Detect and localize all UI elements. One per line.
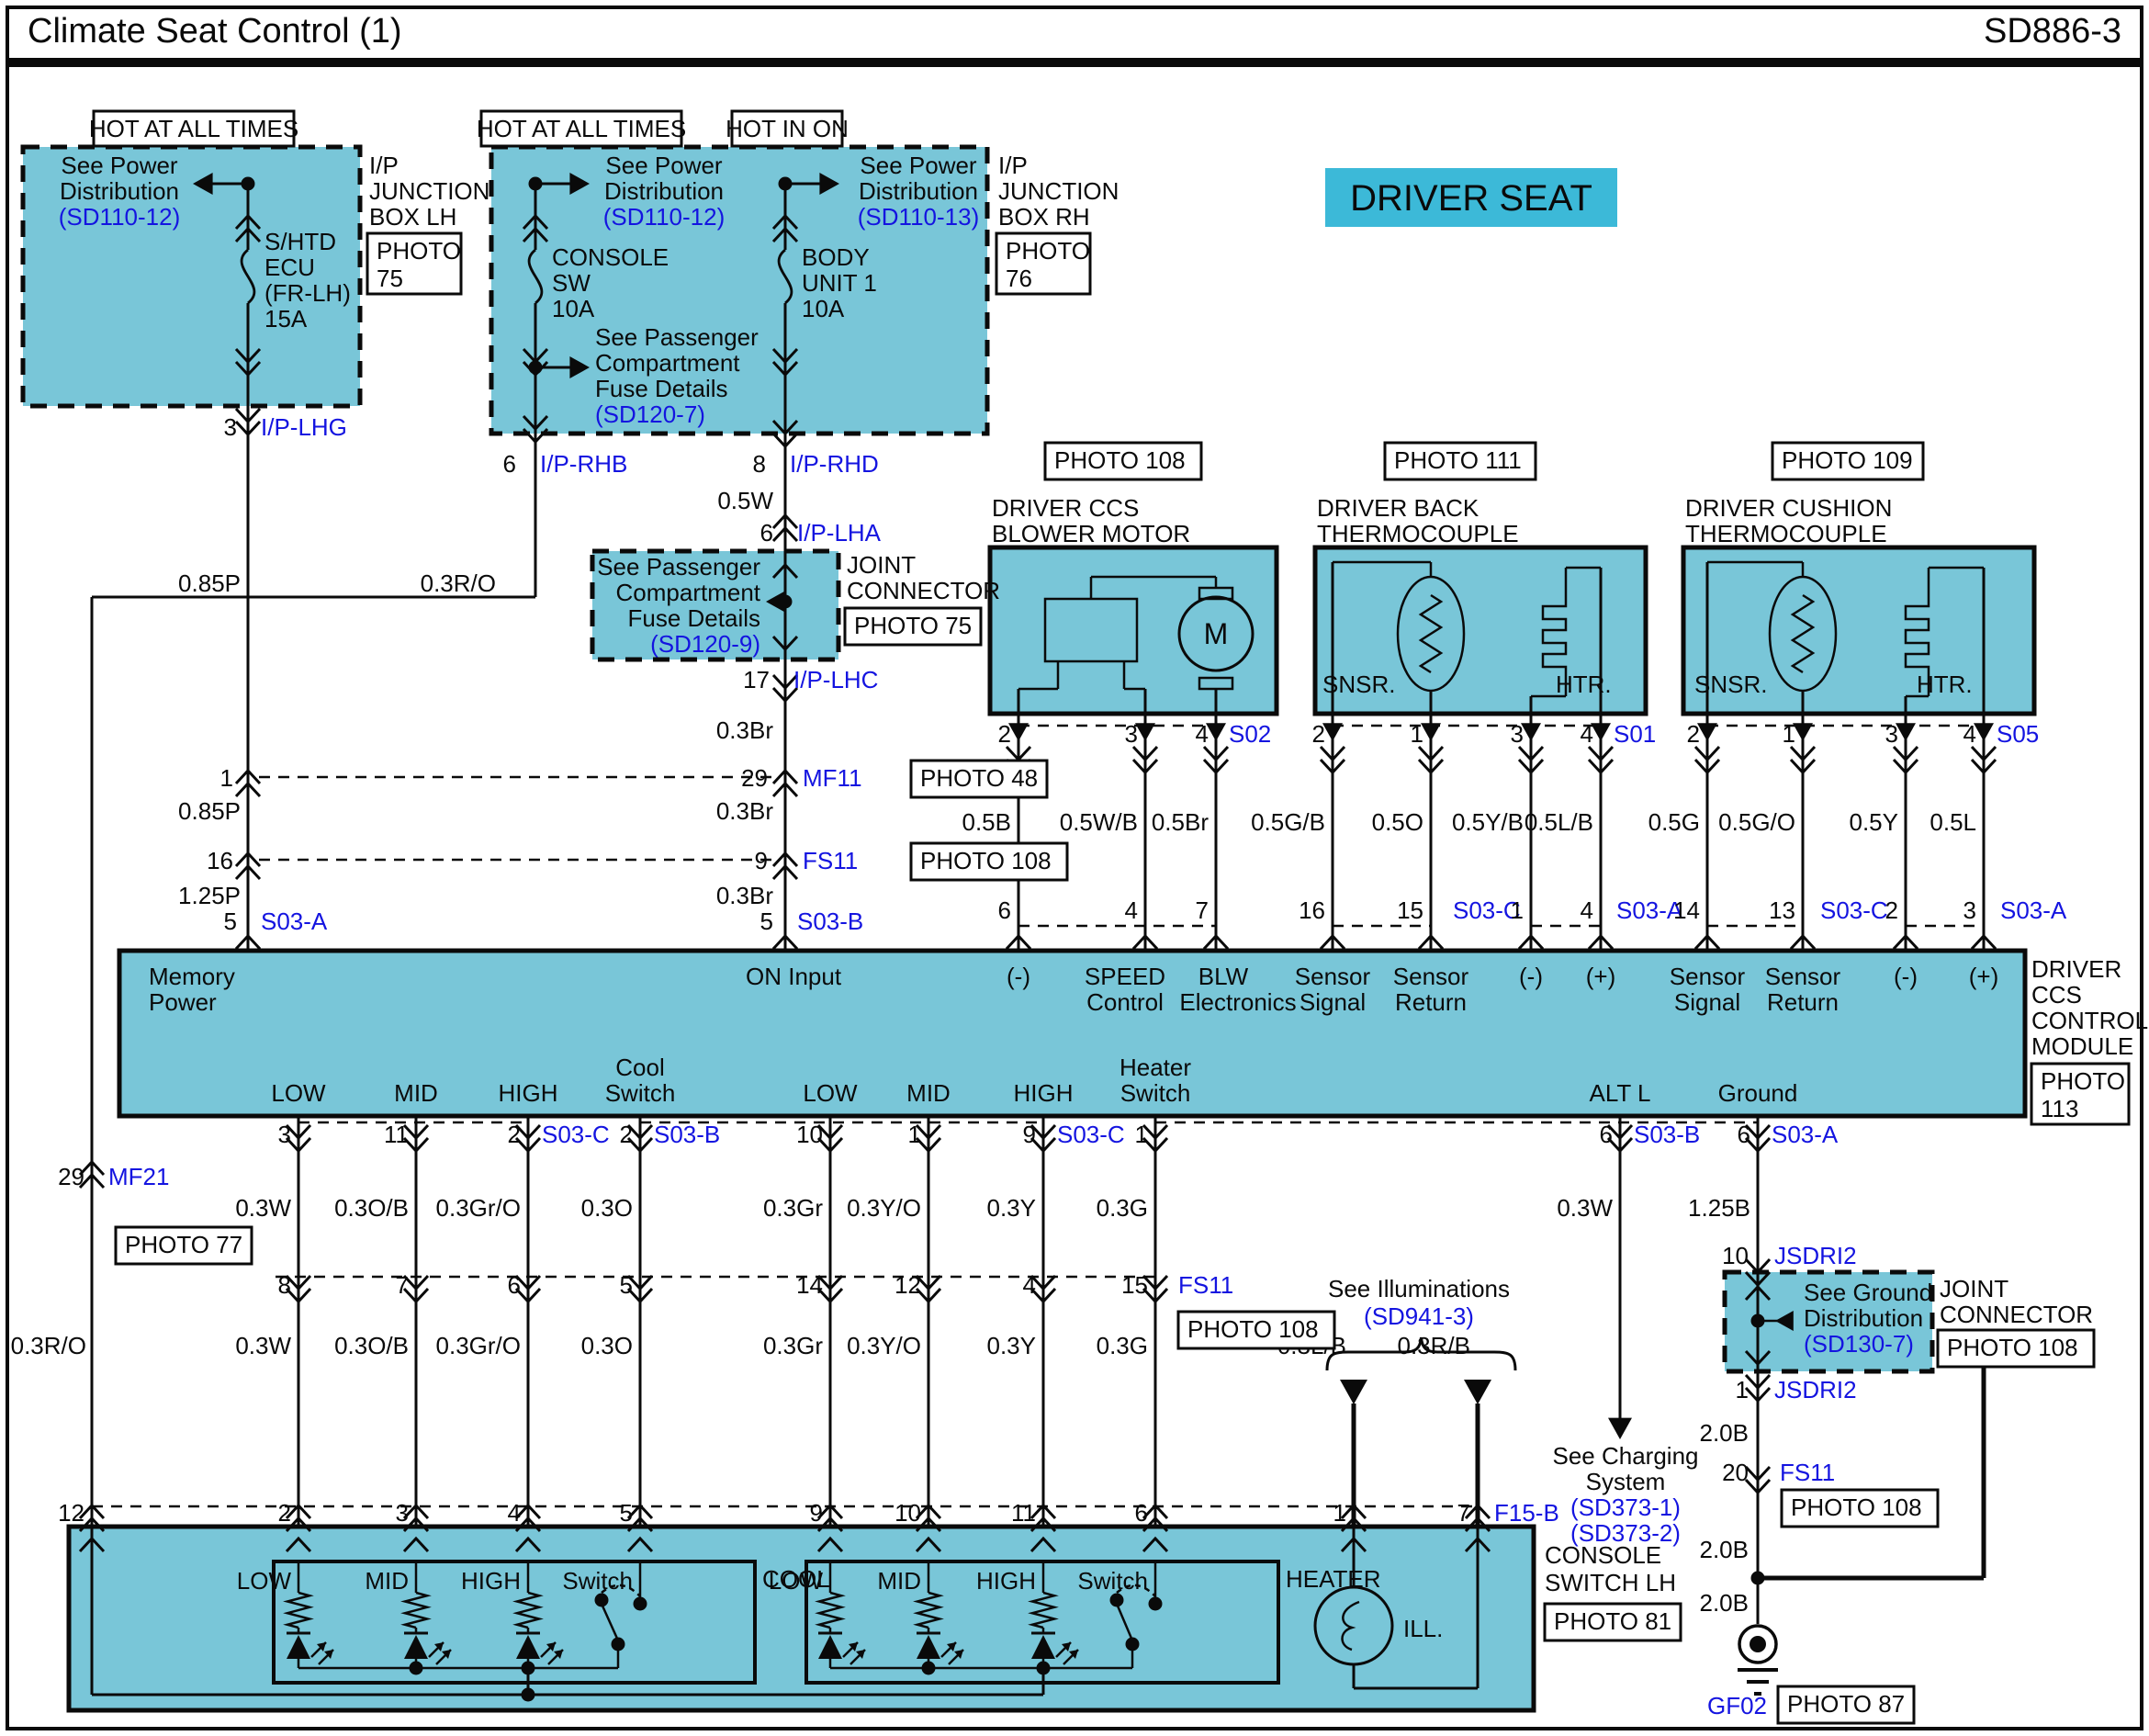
label-distribution: Distribution [1804, 1304, 1923, 1332]
label-ill: ILL. [1403, 1615, 1443, 1642]
photo-76-ref: PHOTO [1006, 237, 1090, 265]
label-s03-b: S03-B [1634, 1121, 1700, 1148]
label-low: LOW [237, 1567, 292, 1595]
label-6: 6 [1738, 1121, 1750, 1148]
label-mf21: MF21 [108, 1163, 169, 1190]
label-switch: Switch [1120, 1079, 1191, 1107]
label-driver: DRIVER [2031, 955, 2121, 983]
label-ecu: ECU [264, 254, 315, 281]
label-s03-a: S03-A [261, 907, 328, 935]
label-3: 3 [1125, 720, 1138, 748]
junction-dot [410, 1662, 423, 1675]
label-signal: Signal [1300, 988, 1366, 1016]
label-fs11: FS11 [1780, 1459, 1835, 1486]
label-high: HIGH [461, 1567, 521, 1595]
label-sd120-7: (SD120-7) [595, 400, 705, 428]
label-high: HIGH [976, 1567, 1036, 1595]
label-0-3gr-o: 0.3Gr/O [436, 1332, 521, 1359]
label-snsr: SNSR. [1322, 671, 1395, 698]
photo-75b-ref: PHOTO 75 [854, 612, 972, 639]
label-1-25p: 1.25P [178, 882, 241, 909]
label-3: 3 [1963, 896, 1976, 924]
photo-76-ref: 76 [1006, 265, 1032, 292]
label-0-5g: 0.5G [1648, 808, 1700, 836]
label-2: 2 [1687, 720, 1700, 748]
label-return: Return [1767, 988, 1839, 1016]
label-fuse-details: Fuse Details [628, 604, 761, 632]
label-gf02: GF02 [1707, 1692, 1767, 1719]
label-1: 1 [220, 764, 233, 792]
label-htr: HTR. [1556, 671, 1612, 698]
label-high: HIGH [499, 1079, 558, 1107]
label-heater: HEATER [1286, 1565, 1381, 1593]
label-compartment: Compartment [595, 349, 740, 377]
label-4: 4 [1125, 896, 1138, 924]
label-0-3o-b: 0.3O/B [334, 1332, 409, 1359]
junction-dot [522, 1688, 535, 1702]
label-1-25b: 1.25B [1688, 1194, 1750, 1222]
label-: (-) [1007, 963, 1030, 990]
label-0-5br: 0.5Br [1152, 808, 1209, 836]
label-power: Power [149, 988, 217, 1016]
junction-dot [1110, 1594, 1124, 1607]
label-s03-c: S03-C [542, 1121, 610, 1148]
label-4: 4 [508, 1499, 521, 1527]
photo-77-ref: PHOTO 77 [125, 1231, 242, 1258]
label-sd110-13: (SD110-13) [858, 203, 979, 231]
label-15a: 15A [264, 305, 308, 333]
label-joint: JOINT [847, 551, 916, 579]
label-low: LOW [271, 1079, 326, 1107]
sheet-code: SD886-3 [1984, 12, 2121, 51]
label-s03-a: S03-A [1772, 1121, 1839, 1148]
label-9: 9 [810, 1499, 823, 1527]
label-0-5w: 0.5W [717, 487, 773, 514]
photo-87-ref: PHOTO 87 [1787, 1690, 1905, 1718]
label-: (+) [1586, 963, 1616, 990]
photo-75-ref: PHOTO [377, 237, 461, 265]
label-distribution: Distribution [604, 177, 724, 205]
photo-109-ref: PHOTO 109 [1782, 446, 1913, 474]
label-1: 1 [1135, 1121, 1148, 1148]
label-i-p: I/P [369, 152, 399, 179]
wiring-diagram: Climate Seat Control (1)SD886-3See Power… [0, 0, 2149, 1736]
label-10a: 10A [552, 295, 595, 322]
label-junction: JUNCTION [369, 177, 489, 205]
label-0-5o: 0.5O [1372, 808, 1423, 836]
label-5: 5 [620, 1271, 633, 1299]
label-6: 6 [998, 896, 1011, 924]
label-s03-c: S03-C [1820, 896, 1888, 924]
label-11: 11 [384, 1121, 409, 1148]
label-2: 2 [1312, 720, 1325, 748]
label-sd120-9: (SD120-9) [650, 630, 760, 658]
label-s03-a: S03-A [2000, 896, 2067, 924]
label-0-3y: 0.3Y [987, 1332, 1037, 1359]
label-sd373-1: (SD373-1) [1570, 1494, 1681, 1521]
label-switch: Switch [562, 1567, 633, 1595]
ground-icon [1750, 1636, 1766, 1652]
photo-113-ref: PHOTO [2041, 1067, 2125, 1095]
hot-at-all-times-2: HOT AT ALL TIMES [477, 115, 686, 142]
label-20: 20 [1722, 1459, 1749, 1486]
photo-81-ref: PHOTO 81 [1554, 1607, 1671, 1635]
label-0-3br: 0.3Br [716, 882, 773, 909]
label-12: 12 [58, 1499, 84, 1527]
label-sw: SW [552, 269, 591, 297]
label-switch: Switch [1077, 1567, 1148, 1595]
label-jsdri2: JSDRI2 [1774, 1242, 1857, 1269]
hot-in-on: HOT IN ON [726, 115, 849, 142]
photo-108-blower-ref: PHOTO 108 [1054, 446, 1186, 474]
label-fs11: FS11 [1178, 1271, 1233, 1299]
photo-75-ref: 75 [377, 265, 403, 292]
label-fuse-details: Fuse Details [595, 375, 728, 402]
label-s02: S02 [1229, 720, 1271, 748]
label-0-85p: 0.85P [178, 569, 241, 597]
label-0-5b: 0.5B [962, 808, 1012, 836]
label-sensor: Sensor [1670, 963, 1746, 990]
label-jsdri2: JSDRI2 [1774, 1376, 1857, 1403]
label-module: MODULE [2031, 1032, 2133, 1060]
label-i-p-lha: I/P-LHA [797, 519, 882, 547]
label-15: 15 [1397, 896, 1423, 924]
label-connector: CONNECTOR [1940, 1301, 2093, 1328]
label-0-5w-b: 0.5W/B [1060, 808, 1138, 836]
label-fs11: FS11 [803, 847, 858, 874]
label-see-power: See Power [61, 152, 178, 179]
label-1: 1 [1736, 1376, 1749, 1403]
label-high: HIGH [1014, 1079, 1074, 1107]
photo-108-fs11-ref: PHOTO 108 [920, 847, 1052, 874]
label-1: 1 [1333, 1499, 1346, 1527]
label-alt-l: ALT L [1590, 1079, 1651, 1107]
label-0-3r-o: 0.3R/O [421, 569, 496, 597]
label-s01: S01 [1614, 720, 1656, 748]
label-14: 14 [1673, 896, 1700, 924]
label-box-rh: BOX RH [998, 203, 1090, 231]
label-3: 3 [396, 1499, 409, 1527]
label-joint: JOINT [1940, 1275, 2008, 1302]
photo-108-fs11b-ref: PHOTO 108 [1187, 1315, 1319, 1343]
label-mid: MID [906, 1079, 951, 1107]
label-switch: Switch [605, 1079, 676, 1107]
label-16: 16 [1299, 896, 1325, 924]
label-switch-lh: SWITCH LH [1545, 1569, 1676, 1596]
label-6: 6 [760, 519, 773, 547]
label-10: 10 [796, 1121, 823, 1148]
junction-dot [1149, 1597, 1163, 1611]
label-2-0b: 2.0B [1700, 1536, 1750, 1563]
junction-dot [595, 1594, 609, 1607]
junction-dot [1037, 1662, 1051, 1675]
label-0-3gr: 0.3Gr [763, 1194, 823, 1222]
label-5: 5 [224, 907, 237, 935]
label-2: 2 [278, 1499, 291, 1527]
label-5: 5 [620, 1499, 633, 1527]
label-14: 14 [796, 1271, 823, 1299]
label-10a: 10A [802, 295, 845, 322]
junction-dot [634, 1597, 647, 1611]
label-on-input: ON Input [746, 963, 842, 990]
photo-108-fs11c-ref: PHOTO 108 [1791, 1494, 1922, 1521]
label-sensor: Sensor [1295, 963, 1371, 990]
label-connector: CONNECTOR [847, 577, 1000, 604]
label-ccs: CCS [2031, 981, 2082, 1009]
junction-dot [922, 1662, 936, 1675]
label-see-passenger: See Passenger [595, 323, 759, 351]
label-4: 4 [1581, 720, 1593, 748]
label-2: 2 [620, 1121, 633, 1148]
label-i-p-rhb: I/P-RHB [540, 450, 627, 478]
label-0-3w: 0.3W [235, 1194, 291, 1222]
label-0-5y-b: 0.5Y/B [1452, 808, 1524, 836]
photo-113-ref: 113 [2041, 1095, 2078, 1122]
label-6: 6 [1135, 1499, 1148, 1527]
photo-48-ref: PHOTO 48 [920, 764, 1038, 792]
label-3: 3 [224, 413, 237, 441]
label-0-3br: 0.3Br [716, 716, 773, 744]
label-i-p-lhc: I/P-LHC [793, 666, 878, 693]
label-fr-lh: (FR-LH) [264, 279, 351, 307]
junction-dot [1126, 1638, 1140, 1651]
junction-dot [612, 1638, 625, 1651]
label-16: 16 [207, 847, 233, 874]
label-0-85p: 0.85P [178, 797, 241, 825]
label-driver-ccs: DRIVER CCS [992, 494, 1139, 522]
label-15: 15 [1121, 1271, 1148, 1299]
label-0-3r-o: 0.3R/O [11, 1332, 86, 1359]
label-0-5y: 0.5Y [1850, 808, 1899, 836]
page-title: Climate Seat Control (1) [28, 12, 402, 51]
label-6: 6 [508, 1271, 521, 1299]
label-thermocouple: THERMOCOUPLE [1317, 520, 1519, 547]
label-17: 17 [743, 666, 770, 693]
label-3: 3 [1885, 720, 1898, 748]
label-unit-1: UNIT 1 [802, 269, 877, 297]
label-2: 2 [508, 1121, 521, 1148]
label-0-3o: 0.3O [581, 1332, 633, 1359]
label-0-3y-o: 0.3Y/O [847, 1332, 921, 1359]
photo-108-joint-ref: PHOTO 108 [1947, 1334, 2078, 1361]
label-2: 2 [1885, 896, 1898, 924]
label-10: 10 [1722, 1242, 1749, 1269]
junction-dot [242, 177, 255, 191]
label-: (-) [1519, 963, 1543, 990]
label-heater: Heater [1120, 1054, 1191, 1081]
label-3: 3 [1511, 720, 1524, 748]
label-junction: JUNCTION [998, 177, 1119, 205]
label-cool: Cool [615, 1054, 664, 1081]
label-9: 9 [1023, 1121, 1036, 1148]
label-mid: MID [394, 1079, 438, 1107]
label-electronics: Electronics [1179, 988, 1296, 1016]
label-s03-b: S03-B [797, 907, 863, 935]
label-4: 4 [1581, 896, 1593, 924]
label-9: 9 [755, 847, 768, 874]
label-signal: Signal [1674, 988, 1740, 1016]
label-body: BODY [802, 243, 870, 271]
label-: (+) [1969, 963, 1999, 990]
label-0-5l: 0.5L [1930, 808, 1976, 836]
label-11: 11 [1011, 1499, 1036, 1527]
label-sensor: Sensor [1393, 963, 1469, 990]
label-see-ground: See Ground [1804, 1279, 1932, 1306]
junction-dot [779, 177, 793, 191]
label-2-0b: 2.0B [1700, 1589, 1750, 1617]
label-thermocouple: THERMOCOUPLE [1685, 520, 1887, 547]
label-0-3o-b: 0.3O/B [334, 1194, 409, 1222]
junction-dot [1751, 1572, 1765, 1585]
label-0-3gr-o: 0.3Gr/O [436, 1194, 521, 1222]
label-see-power: See Power [605, 152, 723, 179]
label-1: 1 [1783, 720, 1795, 748]
label-sd110-12: (SD110-12) [603, 203, 725, 231]
label-1: 1 [1511, 896, 1524, 924]
label-mf11: MF11 [803, 764, 862, 792]
label-distribution: Distribution [859, 177, 978, 205]
label-0-3w: 0.3W [1557, 1194, 1613, 1222]
label-2-0b: 2.0B [1700, 1419, 1750, 1447]
label-4: 4 [1963, 720, 1976, 748]
label-3: 3 [278, 1121, 291, 1148]
label-m: M [1204, 617, 1229, 650]
label-s03-c: S03-C [1057, 1121, 1125, 1148]
label-0-3r-b: 0.3R/B [1398, 1332, 1471, 1359]
label-0-3g: 0.3G [1097, 1332, 1148, 1359]
label-29: 29 [741, 764, 768, 792]
label-6: 6 [503, 450, 516, 478]
label-0-3y-o: 0.3Y/O [847, 1194, 921, 1222]
label-0-3g: 0.3G [1097, 1194, 1148, 1222]
label-htr: HTR. [1917, 671, 1973, 698]
junction-dot [1751, 1314, 1765, 1328]
label-see-illuminations: See Illuminations [1328, 1275, 1510, 1302]
label-mid: MID [365, 1567, 409, 1595]
label-0-3w: 0.3W [235, 1332, 291, 1359]
label-f15-b: F15-B [1494, 1499, 1559, 1527]
label-8: 8 [753, 450, 766, 478]
label-memory: Memory [149, 963, 235, 990]
label-4: 4 [1023, 1271, 1036, 1299]
label-6: 6 [1600, 1121, 1613, 1148]
label-box-lh: BOX LH [369, 203, 456, 231]
label-0-5g-b: 0.5G/B [1251, 808, 1325, 836]
label-distribution: Distribution [60, 177, 179, 205]
label-see-charging: See Charging [1553, 1442, 1699, 1470]
label-control: CONTROL [2031, 1007, 2148, 1034]
label-29: 29 [58, 1163, 84, 1190]
label-i-p-lhg: I/P-LHG [261, 413, 347, 441]
label-mid: MID [877, 1567, 921, 1595]
junction-dot [529, 177, 543, 191]
label-i-p: I/P [998, 152, 1028, 179]
hot-at-all-times-1: HOT AT ALL TIMES [89, 115, 298, 142]
label-driver-back: DRIVER BACK [1317, 494, 1480, 522]
label-compartment: Compartment [616, 579, 761, 606]
label-see-power: See Power [860, 152, 977, 179]
label-7: 7 [1196, 896, 1209, 924]
label-0-3y: 0.3Y [987, 1194, 1037, 1222]
label-5: 5 [760, 907, 773, 935]
label-console: CONSOLE [552, 243, 669, 271]
label-13: 13 [1769, 896, 1795, 924]
label-console: CONSOLE [1545, 1541, 1661, 1569]
label-return: Return [1395, 988, 1467, 1016]
label-see-passenger: See Passenger [597, 553, 760, 581]
junction-dot [522, 1662, 535, 1675]
label-low: LOW [769, 1567, 824, 1595]
label-0-3gr: 0.3Gr [763, 1332, 823, 1359]
label-0-3br: 0.3Br [716, 797, 773, 825]
label-1: 1 [1411, 720, 1423, 748]
label-10: 10 [894, 1499, 921, 1527]
label-snsr: SNSR. [1694, 671, 1767, 698]
label-: (-) [1894, 963, 1918, 990]
label-0-3o: 0.3O [581, 1194, 633, 1222]
label-8: 8 [278, 1271, 291, 1299]
label-blower-motor: BLOWER MOTOR [992, 520, 1190, 547]
label-low: LOW [803, 1079, 858, 1107]
label-7: 7 [396, 1271, 409, 1299]
photo-111-ref: PHOTO 111 [1394, 446, 1522, 474]
label-driver-cushion: DRIVER CUSHION [1685, 494, 1892, 522]
driver-seat-title: DRIVER SEAT [1350, 178, 1592, 219]
label-system: System [1586, 1468, 1666, 1495]
label-sd110-12: (SD110-12) [59, 203, 180, 231]
label-2: 2 [998, 720, 1011, 748]
diagram-canvas: Climate Seat Control (1)SD886-3See Power… [0, 0, 2149, 1736]
label-speed: SPEED [1085, 963, 1165, 990]
label-ground: Ground [1718, 1079, 1798, 1107]
label-blw: BLW [1198, 963, 1249, 990]
label-i-p-rhd: I/P-RHD [790, 450, 879, 478]
label-4: 4 [1196, 720, 1209, 748]
label-sd941-3: (SD941-3) [1364, 1302, 1474, 1330]
label-s-htd: S/HTD [264, 228, 336, 255]
label-sensor: Sensor [1765, 963, 1841, 990]
label-s03-b: S03-B [654, 1121, 720, 1148]
label-0-5g-o: 0.5G/O [1718, 808, 1795, 836]
label-sd130-7: (SD130-7) [1804, 1330, 1914, 1358]
label-12: 12 [894, 1271, 921, 1299]
label-0-5l-b: 0.5L/B [1525, 808, 1593, 836]
label-1: 1 [908, 1121, 921, 1148]
label-control: Control [1086, 988, 1164, 1016]
label-s05: S05 [1997, 720, 2039, 748]
label-7: 7 [1457, 1499, 1470, 1527]
